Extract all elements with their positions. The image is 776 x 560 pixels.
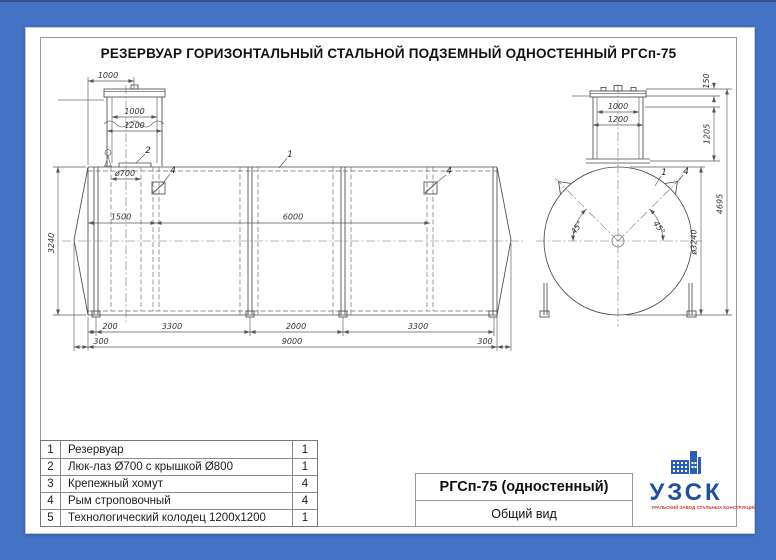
dim-end-right: 300 [477,337,492,346]
callout-manhole: 2 [145,146,151,156]
part-name: Крепежный хомут [60,476,292,492]
part-qty: 1 [292,459,317,475]
parts-table: 1 Резервуар 1 2 Люк-лаз Ø700 с крышкой Ø… [40,440,318,527]
table-row: 2 Люк-лаз Ø700 с крышкой Ø800 1 [41,458,317,475]
dim-end-left: 300 [93,337,108,346]
part-no: 4 [41,493,60,509]
dim-manhole-dia: ø700 [114,169,135,178]
dim-leg-span-1: 3300 [162,322,182,331]
part-no: 2 [41,459,60,475]
callout-lug: 4 [446,167,452,177]
side-view: 1000 1000 1200 ø700 3240 1500 6000 200 3… [47,71,523,351]
logo-text: УЗСК [638,480,734,506]
part-qty: 1 [292,510,317,526]
factory-icon [669,449,703,475]
dim-lug-spacing: 6000 [283,213,303,222]
part-qty: 1 [292,441,317,458]
dim-lug-angle: 45° [569,219,585,236]
dim-lug-angle: 45° [651,219,667,236]
callout-lug: 4 [683,167,689,177]
model-designation: РГСп-75 (одностенный) [416,474,632,501]
dim-leg-span-mid: 2000 [286,322,306,331]
page: РЕЗЕРВУАР ГОРИЗОНТАЛЬНЫЙ СТАЛЬНОЙ ПОДЗЕМ… [0,0,776,560]
table-row: 1 Резервуар 1 [41,441,317,458]
part-qty: 4 [292,493,317,509]
table-row: 4 Рым строповочный 4 [41,492,317,509]
part-name: Резервуар [60,441,292,458]
dim-lug-offset: 1500 [111,213,131,222]
company-logo: УЗСК УРАЛЬСКИЙ ЗАВОД СТАЛЬНЫХ КОНСТРУКЦИ… [638,449,734,512]
part-no: 1 [41,441,60,458]
dim-cover-height: 150 [702,73,711,88]
part-no: 3 [41,476,60,492]
dim-shell-dia: 3240 [47,233,56,253]
table-row: 5 Технологический колодец 1200x1200 1 [41,509,317,526]
callout-reservoir: 1 [661,168,667,178]
dim-well-top-width: 1000 [124,107,144,116]
dim-well-width: 1200 [124,121,144,130]
dim-end-shell-dia: ø3240 [690,229,699,255]
part-qty: 4 [292,476,317,492]
title-block: РГСп-75 (одностенный) Общий вид [415,473,633,527]
dim-total-height: 4695 [716,194,725,214]
callout-reservoir: 1 [287,150,293,160]
part-name: Рым строповочный [60,493,292,509]
lifting-eye-icon [104,150,112,167]
dim-end-well-top-width: 1000 [608,102,628,111]
dim-neck-height: 1205 [703,124,712,144]
part-name: Люк-лаз Ø700 с крышкой Ø800 [60,459,292,475]
dim-end-well-width: 1200 [608,115,628,124]
part-no: 5 [41,510,60,526]
dim-leg-span-2: 3300 [408,322,428,331]
dim-offset-top: 1000 [98,71,118,80]
callout-lug: 4 [170,166,176,176]
view-name: Общий вид [416,501,632,528]
table-row: 3 Крепежный хомут 4 [41,475,317,492]
strap-lug-icon [152,182,437,194]
end-view: 45° 45° 1000 1200 150 1205 4695 ø3240 1 … [536,73,732,327]
logo-tagline: УРАЛЬСКИЙ ЗАВОД СТАЛЬНЫХ КОНСТРУКЦИЙ [651,506,720,510]
dim-leg-offset: 200 [102,322,117,331]
dim-shell-length: 9000 [282,337,302,346]
part-name: Технологический колодец 1200x1200 [60,510,292,526]
